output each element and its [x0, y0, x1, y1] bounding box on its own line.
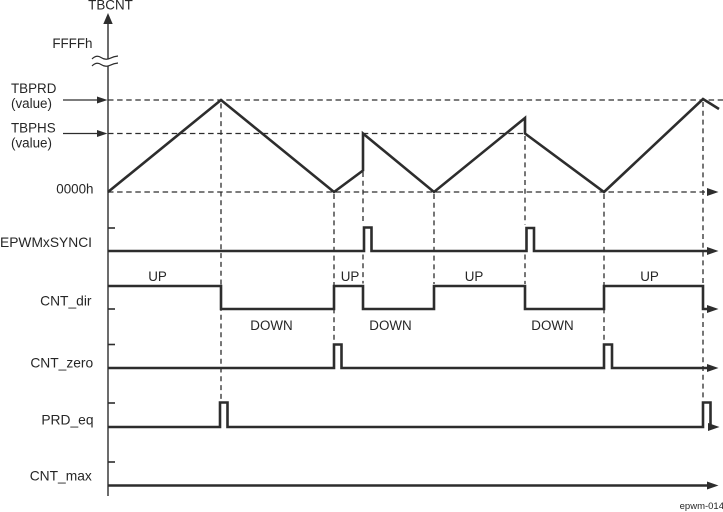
svg-text:UP: UP — [465, 269, 484, 284]
svg-text:TBPRD: TBPRD — [11, 81, 57, 96]
svg-text:EPWMxSYNCI: EPWMxSYNCI — [0, 235, 92, 250]
svg-text:CNT_max: CNT_max — [30, 469, 92, 484]
svg-text:(value): (value) — [11, 136, 52, 151]
svg-text:DOWN: DOWN — [531, 318, 573, 333]
svg-text:UP: UP — [148, 269, 167, 284]
svg-text:UP: UP — [341, 269, 360, 284]
svg-text:UP: UP — [640, 269, 659, 284]
svg-text:CNT_zero: CNT_zero — [30, 356, 93, 371]
svg-text:epwm-014: epwm-014 — [680, 501, 723, 512]
svg-text:(value): (value) — [11, 96, 52, 111]
svg-text:FFFFh: FFFFh — [52, 36, 92, 51]
svg-text:PRD_eq: PRD_eq — [41, 413, 93, 428]
svg-text:0000h: 0000h — [56, 182, 93, 197]
svg-text:CNT_dir: CNT_dir — [40, 294, 92, 309]
svg-text:TBPHS: TBPHS — [11, 121, 56, 136]
svg-text:TBCNT: TBCNT — [88, 0, 133, 13]
svg-text:DOWN: DOWN — [250, 318, 292, 333]
svg-text:DOWN: DOWN — [369, 318, 411, 333]
